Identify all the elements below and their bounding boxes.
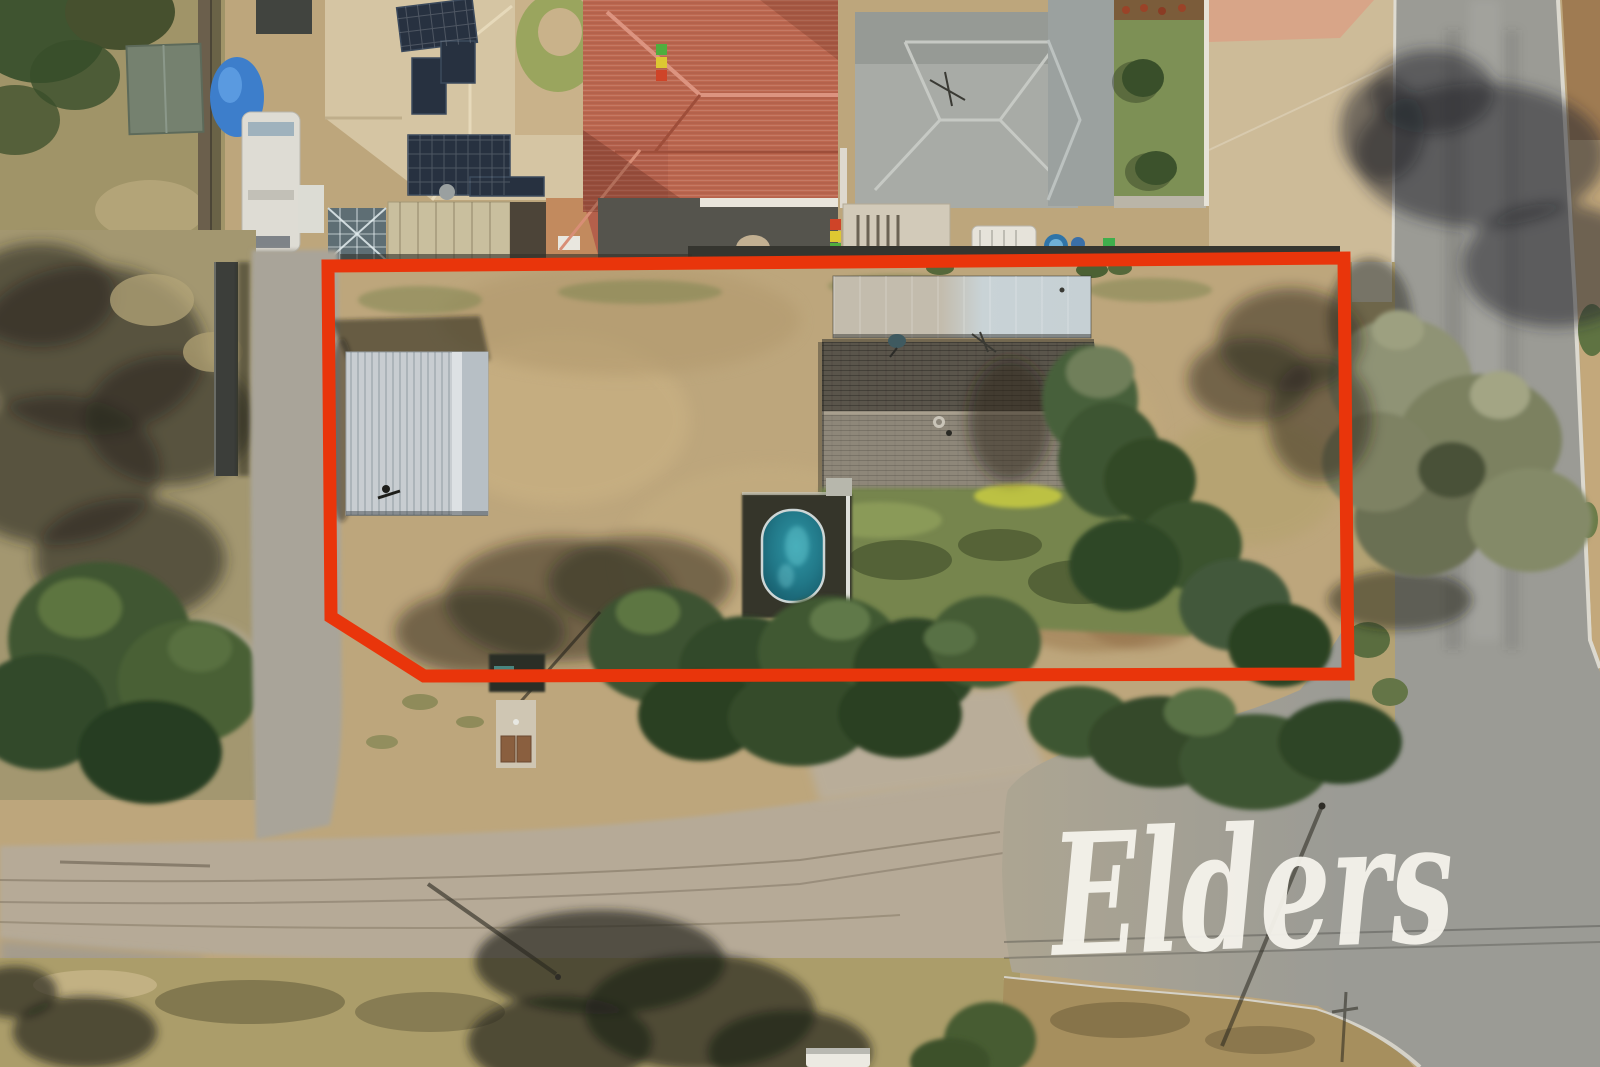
dark-shed <box>256 0 312 34</box>
watermark-logo: Elders <box>1046 783 1457 995</box>
play-cubes <box>656 44 667 81</box>
satellite-dish <box>888 334 906 348</box>
left-area <box>0 230 262 804</box>
caravan-bottom <box>806 1048 870 1067</box>
satellite-dish-small <box>439 184 455 200</box>
garden-shed <box>346 352 488 516</box>
neighbour-long-shed <box>214 262 238 476</box>
concrete-pad <box>496 700 536 768</box>
green-shed <box>126 44 203 135</box>
dark-structure <box>510 202 546 260</box>
gray-roof-house <box>840 12 1078 208</box>
swimming-pool <box>762 510 824 602</box>
quonset-shed <box>388 202 510 260</box>
rear-shed <box>833 276 1091 338</box>
aerial-photo: Elders <box>0 0 1600 1067</box>
right-lawn <box>1112 0 1209 208</box>
